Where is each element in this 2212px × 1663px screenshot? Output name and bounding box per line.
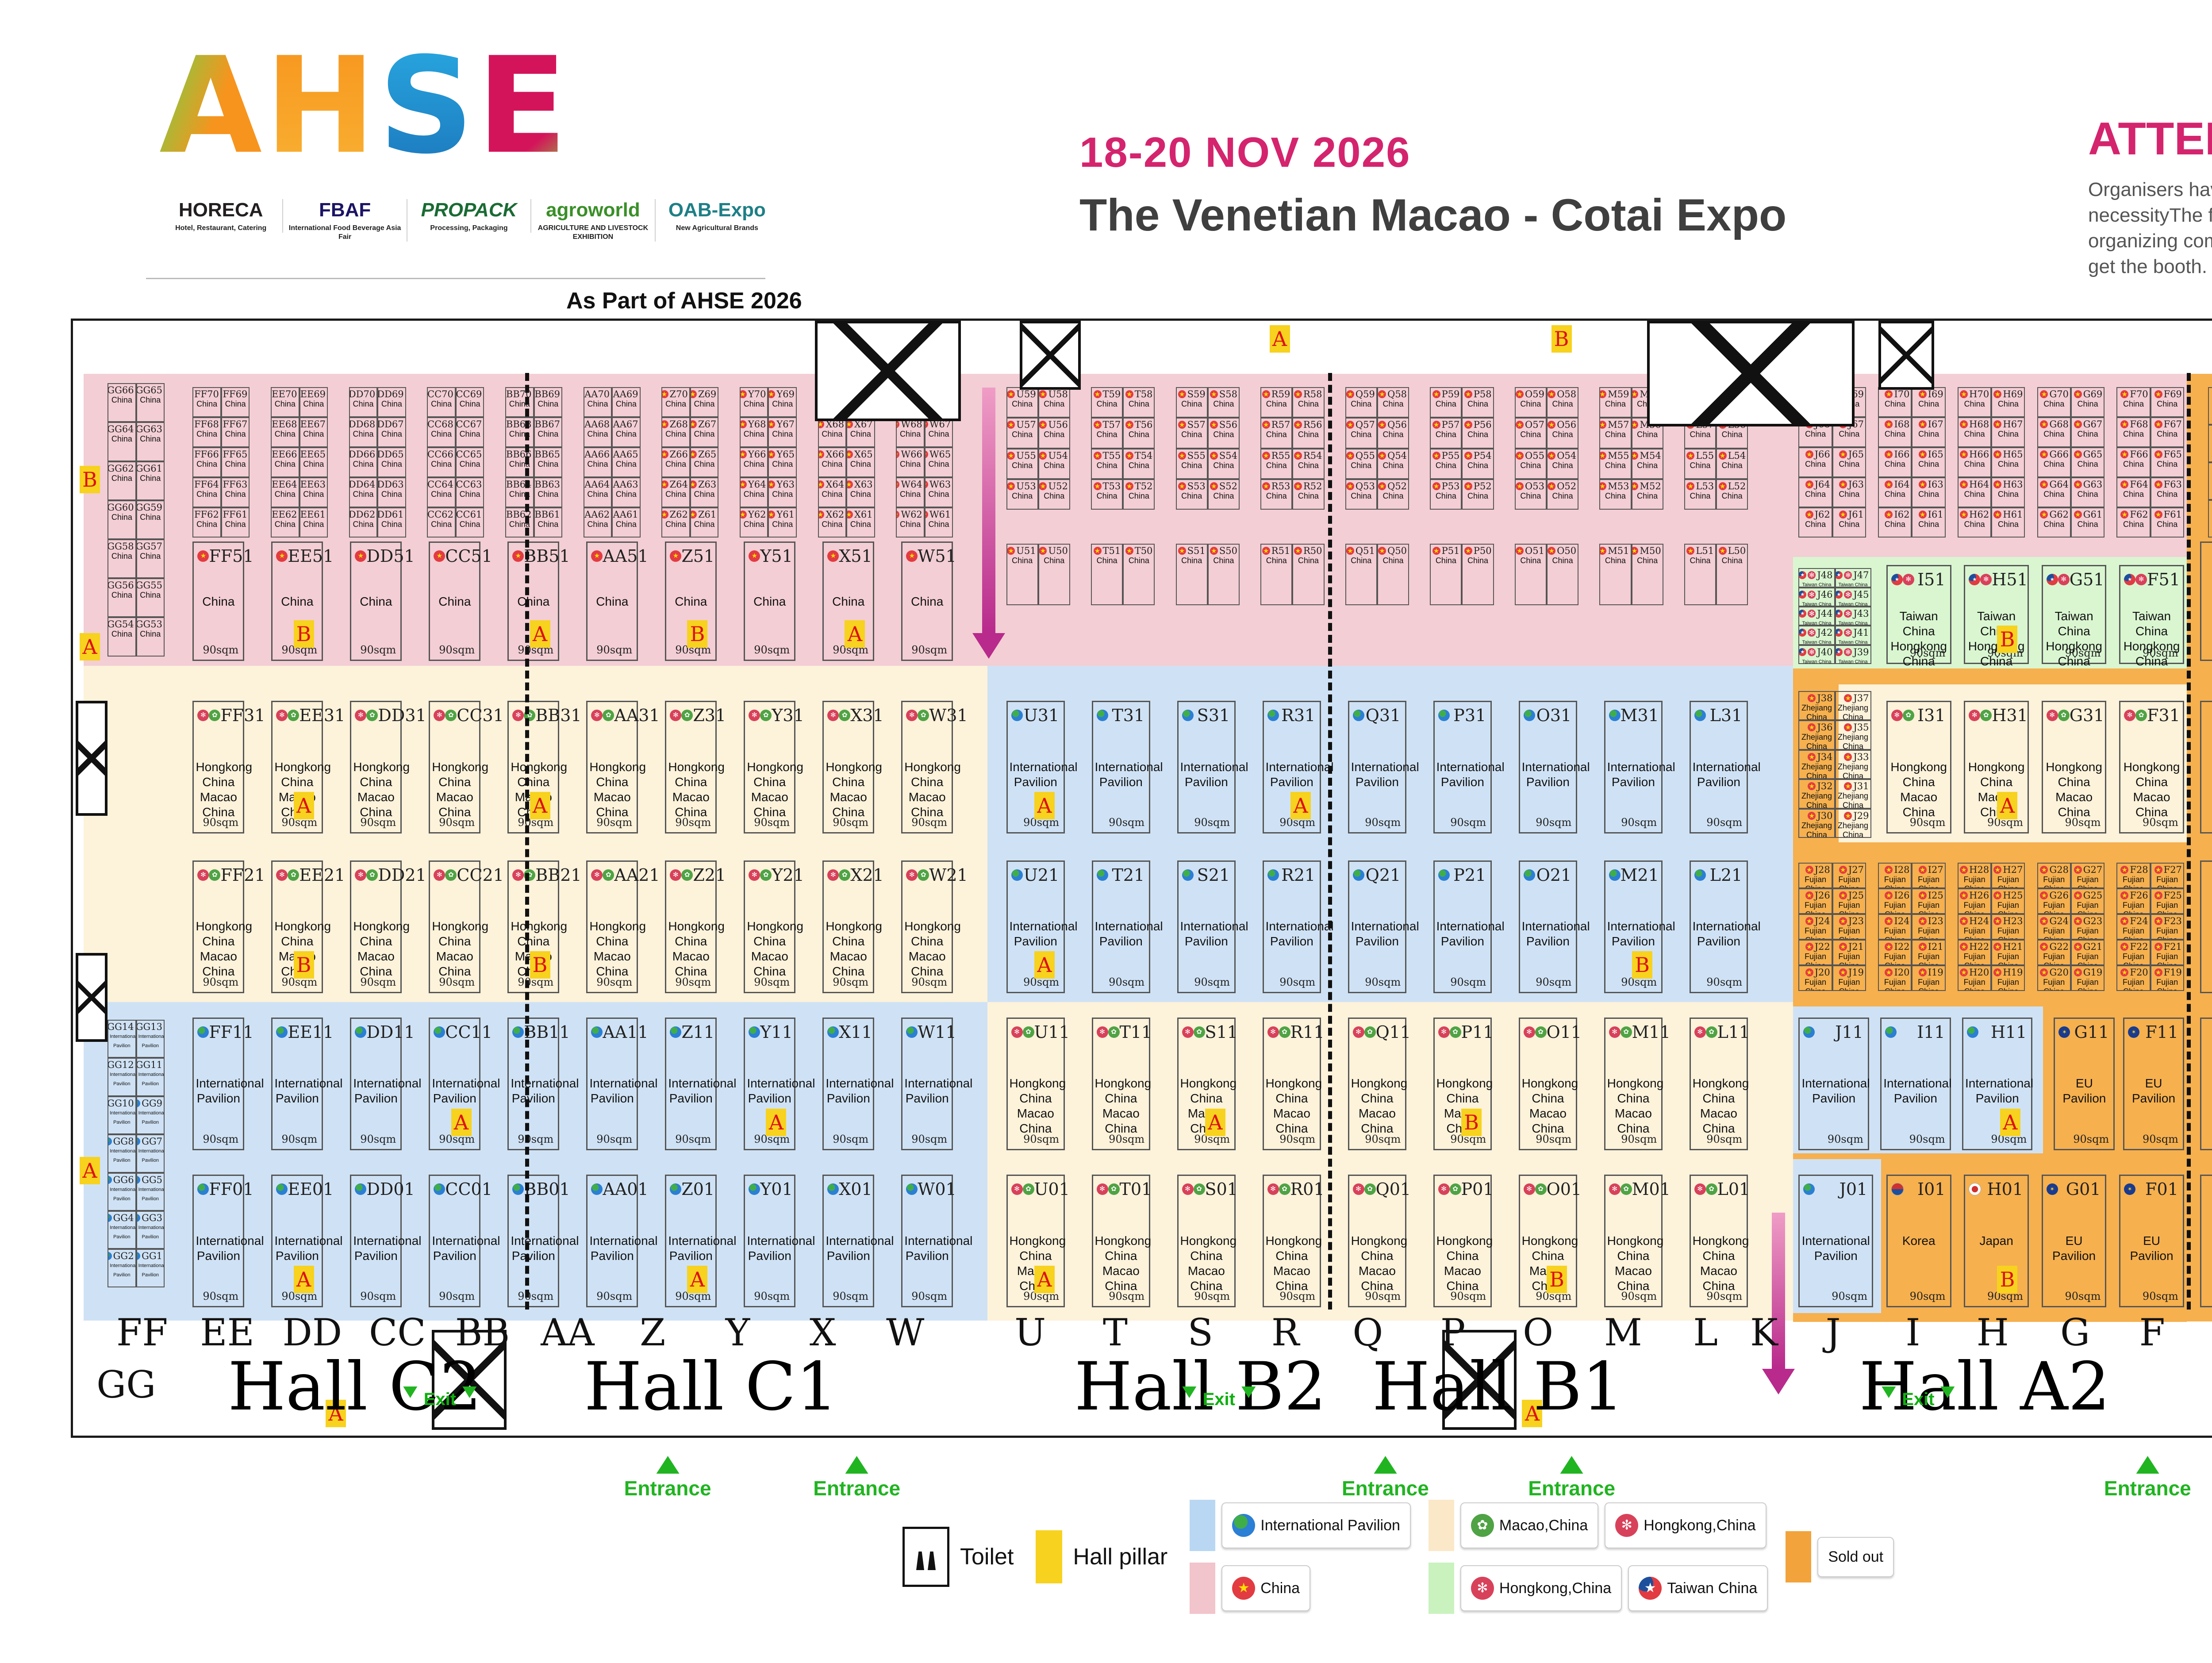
brand-propack: PROPACK Processing, Packaging: [407, 199, 531, 233]
column-letter-G: G: [2060, 1311, 2090, 1354]
entrance-marker: Entrance: [1342, 1444, 1429, 1500]
tw-flag-icon: [1639, 1577, 1662, 1600]
column-letter-K: K: [1750, 1311, 1778, 1354]
brand-oab-expo: OAB-Expo New Agricultural Brands: [656, 199, 779, 233]
exit-arrow-icon: [403, 1386, 418, 1405]
column-letter-F: F: [2139, 1311, 2165, 1354]
legend-card-label: Hongkong,China: [1499, 1580, 1611, 1597]
column-letter-Q: Q: [1352, 1311, 1383, 1354]
entrance-label: Entrance: [813, 1477, 900, 1500]
entrance-marker: Entrance: [813, 1444, 900, 1500]
legend-card-label: Sold out: [1828, 1548, 1883, 1566]
cn-flag-icon: [1232, 1577, 1255, 1600]
legend-row: International Pavilion: [1190, 1500, 1411, 1551]
exit-arrow-icon: [1882, 1386, 1896, 1405]
mo-flag-icon: [1471, 1514, 1494, 1537]
person-icon: [928, 1544, 936, 1570]
entrance-label: Entrance: [624, 1477, 711, 1500]
column-letter-AA: AA: [541, 1311, 594, 1354]
legend-column: Sold out: [1786, 1531, 1894, 1582]
exit-arrow-icon: [462, 1386, 476, 1405]
brand-name: HORECA: [163, 199, 279, 221]
exit-label: Exit: [424, 1390, 456, 1409]
column-letter-Z: Z: [640, 1311, 665, 1354]
brand-subtitle: AGRICULTURE AND LIVESTOCK EXHIBITION: [535, 224, 651, 242]
column-letter-R: R: [1271, 1311, 1299, 1354]
brand-horeca: HORECA Hotel, Restaurant, Catering: [159, 199, 283, 233]
legend-card-label: Macao,China: [1499, 1517, 1588, 1534]
exit-marker: Exit: [397, 1386, 483, 1410]
ahse-logo: AHSE HORECA Hotel, Restaurant, CateringF…: [159, 40, 779, 242]
legend-card: Taiwan China: [1628, 1565, 1768, 1611]
brand-fbaf: FBAF International Food Beverage Asia Fa…: [283, 199, 407, 242]
legend-card: Hongkong,China: [1460, 1565, 1622, 1611]
entrance-label: Entrance: [1528, 1477, 1615, 1500]
column-letter-BB: BB: [455, 1311, 510, 1354]
attention-note: ATTENTION Organisers have the right to c…: [2088, 113, 2212, 280]
globe-flag-icon: [1232, 1514, 1255, 1537]
toilet-icon: [902, 1527, 949, 1587]
column-letter-FF: FF: [116, 1311, 168, 1354]
legend-card-label: China: [1260, 1580, 1300, 1597]
brand-strip: HORECA Hotel, Restaurant, CateringFBAF I…: [159, 199, 779, 242]
legend-card: Macao,China: [1460, 1502, 1598, 1548]
logo-letter: A: [159, 29, 265, 183]
attention-title: ATTENTION: [2088, 113, 2212, 165]
hk-flag-icon: [1471, 1577, 1494, 1600]
logo-letter: H: [265, 29, 378, 183]
legend-column: Macao,ChinaHongkong,ChinaHongkong,ChinaT…: [1429, 1500, 1768, 1614]
attention-body: Organisers have the right to change comp…: [2088, 177, 2212, 280]
legend-row: China: [1190, 1563, 1411, 1614]
legend-card-label: International Pavilion: [1260, 1517, 1400, 1534]
legend-toilet-label: Toilet: [960, 1544, 1014, 1570]
floor-plan: GG66ChinaGG65ChinaGG64ChinaGG63ChinaGG62…: [71, 319, 2212, 1438]
column-letter-J: J: [1826, 1311, 1841, 1354]
entrance-arrow-icon: [1374, 1444, 1397, 1474]
logo-letter: S: [378, 29, 476, 183]
legend-row: Hongkong,ChinaTaiwan China: [1429, 1563, 1768, 1614]
legend-column: International PavilionChina: [1190, 1500, 1411, 1614]
entrance-arrow-icon: [2136, 1444, 2159, 1474]
column-letter-EE: EE: [200, 1311, 254, 1354]
as-part-label: As Part of AHSE 2026: [566, 288, 802, 314]
person-icon: [916, 1544, 924, 1570]
exit-arrow-icon: [1241, 1386, 1256, 1405]
legend-card-label: Hongkong,China: [1644, 1517, 1755, 1534]
exit-marker: Exit: [1875, 1386, 1961, 1410]
column-letter-W: W: [886, 1311, 924, 1354]
column-letter-T: T: [1103, 1311, 1128, 1354]
brand-name: FBAF: [287, 199, 403, 221]
brand-name: PROPACK: [411, 199, 527, 221]
column-letter-Y: Y: [726, 1311, 750, 1354]
legend-card: Sold out: [1817, 1537, 1894, 1577]
exit-label: Exit: [1203, 1390, 1235, 1409]
legend-card: China: [1221, 1565, 1310, 1611]
brand-name: OAB-Expo: [659, 199, 775, 221]
legend-row: Macao,ChinaHongkong,China: [1429, 1500, 1768, 1551]
column-letter-O: O: [1523, 1311, 1553, 1354]
column-letter-GG: GG: [96, 1363, 156, 1406]
exit-label: Exit: [1902, 1390, 1934, 1409]
column-letter-X: X: [810, 1311, 836, 1354]
column-letter-P: P: [1440, 1311, 1466, 1354]
legend-chip-cream: [1429, 1500, 1454, 1551]
entrance-marker: Entrance: [1528, 1444, 1615, 1500]
column-letter-L: L: [1693, 1311, 1718, 1354]
entrance-arrow-icon: [656, 1444, 679, 1474]
legend-card: International Pavilion: [1221, 1502, 1411, 1548]
column-letter-DD: DD: [283, 1311, 342, 1354]
entrance-arrow-icon: [845, 1444, 868, 1474]
event-venue: The Venetian Macao - Cotai Expo: [1079, 189, 1832, 241]
ahse-logo-letters: AHSE: [159, 40, 779, 173]
legend-chip-blue: [1190, 1500, 1215, 1551]
column-letter-U: U: [1014, 1311, 1046, 1354]
legend-hall-pillar-label: Hall pillar: [1073, 1544, 1167, 1570]
legend: Toilet Hall pillar International Pavilio…: [902, 1500, 1964, 1614]
legend-chip-green: [1429, 1563, 1454, 1614]
event-date: 18-20 NOV 2026: [1079, 128, 1832, 177]
legend-card-label: Taiwan China: [1667, 1580, 1757, 1597]
legend-chip-pink: [1190, 1563, 1215, 1614]
hall-label-hall-b1: Hall B1: [1372, 1348, 1624, 1425]
column-letter-CC: CC: [369, 1311, 426, 1354]
entrance-arrow-icon: [1560, 1444, 1583, 1474]
brand-agroworld: agroworld AGRICULTURE AND LIVESTOCK EXHI…: [531, 199, 655, 242]
hall-label-hall-c1: Hall C1: [584, 1348, 838, 1425]
legend-card: Hongkong,China: [1605, 1502, 1766, 1548]
brand-subtitle: Hotel, Restaurant, Catering: [163, 224, 279, 233]
exit-arrow-icon: [1183, 1386, 1197, 1405]
column-letter-I: I: [1905, 1311, 1920, 1354]
divider: [146, 278, 765, 279]
column-letter-S: S: [1187, 1311, 1213, 1354]
entrance-marker: Entrance: [2104, 1444, 2191, 1500]
brand-subtitle: International Food Beverage Asia Fair: [287, 224, 403, 242]
legend-chip-orange: [1786, 1531, 1811, 1582]
entrance-marker: Entrance: [624, 1444, 711, 1500]
brand-subtitle: Processing, Packaging: [411, 224, 527, 233]
column-letter-M: M: [1604, 1311, 1642, 1354]
hk-flag-icon: [1615, 1514, 1638, 1537]
logo-letter: E: [476, 29, 570, 183]
event-date-venue: 18-20 NOV 2026 The Venetian Macao - Cota…: [1079, 128, 1832, 241]
column-letter-H: H: [1977, 1311, 2009, 1354]
entrance-label: Entrance: [1342, 1477, 1429, 1500]
brand-name: agroworld: [535, 199, 651, 221]
hall-pillar-swatch: [1036, 1530, 1062, 1583]
entrance-label: Entrance: [2104, 1477, 2191, 1500]
exit-marker: Exit: [1176, 1386, 1262, 1410]
exit-arrow-icon: [1941, 1386, 1955, 1405]
legend-row: Sold out: [1786, 1531, 1894, 1582]
brand-subtitle: New Agricultural Brands: [659, 224, 775, 233]
